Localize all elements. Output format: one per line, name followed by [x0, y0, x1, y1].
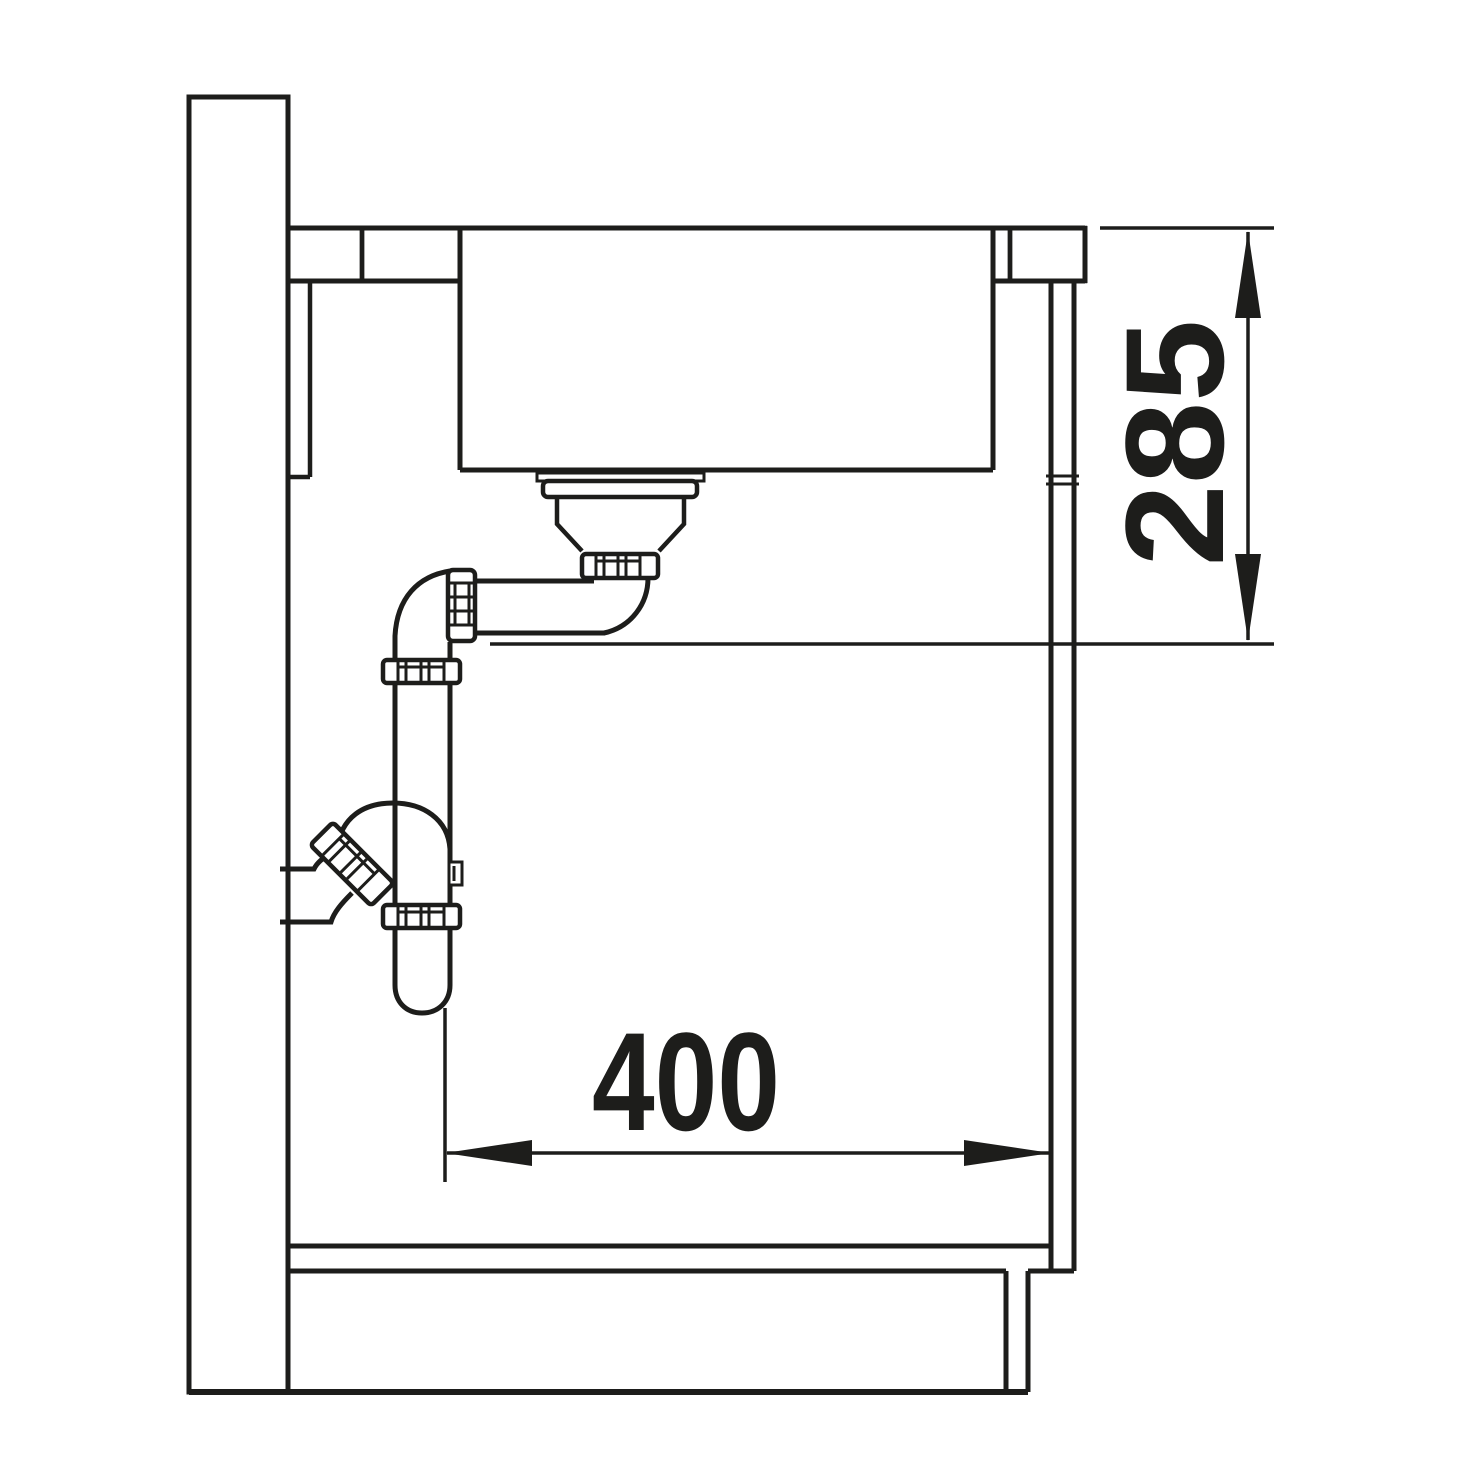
- strainer-funnel-left: [557, 497, 582, 551]
- strainer-body: [543, 481, 697, 497]
- tailpipe-bend: [604, 578, 648, 633]
- arrow-right-icon: [964, 1140, 1051, 1166]
- countertop-hatch-right: [1010, 228, 1085, 281]
- sink-basin: [460, 228, 993, 470]
- countertop-hatch-left: [288, 228, 362, 281]
- strainer-nut: [582, 554, 658, 578]
- pipe-couplings: [310, 554, 658, 928]
- countertop: [288, 226, 1085, 283]
- strainer-funnel-right: [659, 497, 684, 551]
- arrow-up-icon: [1235, 231, 1261, 318]
- trap-u-bottom: [395, 985, 450, 1013]
- technical-drawing-page: 285 400: [0, 0, 1464, 1464]
- sink-section-drawing: 285 400: [0, 0, 1464, 1464]
- drain-strainer: [537, 473, 704, 551]
- slip-nut-upper: [383, 660, 460, 683]
- arrow-left-icon: [445, 1140, 532, 1166]
- dimension-285: 285: [490, 228, 1274, 644]
- dimension-285-label: 285: [1096, 320, 1253, 567]
- wall-hatch: [189, 97, 288, 1392]
- slip-nut-lower: [383, 905, 460, 928]
- trap-clip: [449, 862, 462, 885]
- dimension-400: 400: [445, 1003, 1051, 1182]
- wall-outlet-bottom: [280, 893, 352, 922]
- elbow-nut: [448, 570, 475, 641]
- dimension-400-label: 400: [592, 1003, 780, 1160]
- wall-section: [189, 97, 288, 1392]
